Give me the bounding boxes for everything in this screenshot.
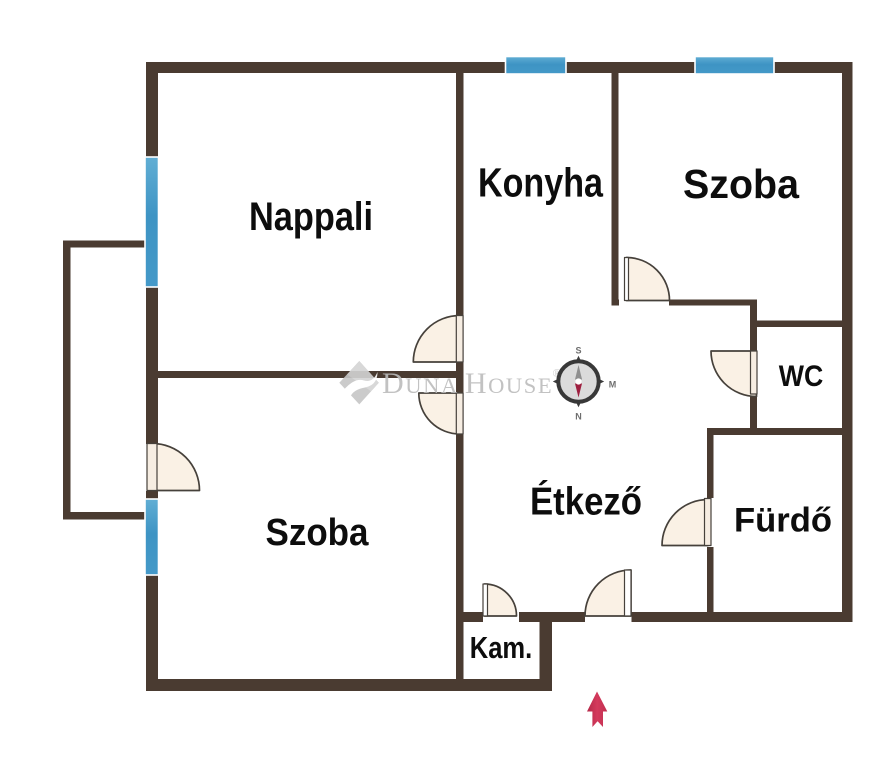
svg-text:Nappali: Nappali — [249, 195, 373, 239]
svg-text:Étkező: Étkező — [530, 480, 642, 524]
svg-text:Konyha: Konyha — [478, 160, 604, 206]
svg-text:WC: WC — [779, 360, 824, 393]
svg-text:Fürdő: Fürdő — [734, 502, 832, 540]
svg-text:Szoba: Szoba — [266, 512, 370, 554]
svg-text:M: M — [609, 380, 617, 390]
svg-text:S: S — [575, 346, 581, 356]
svg-text:N: N — [575, 412, 582, 422]
svg-text:Szoba: Szoba — [683, 161, 800, 207]
svg-text:Kam.: Kam. — [470, 630, 533, 665]
